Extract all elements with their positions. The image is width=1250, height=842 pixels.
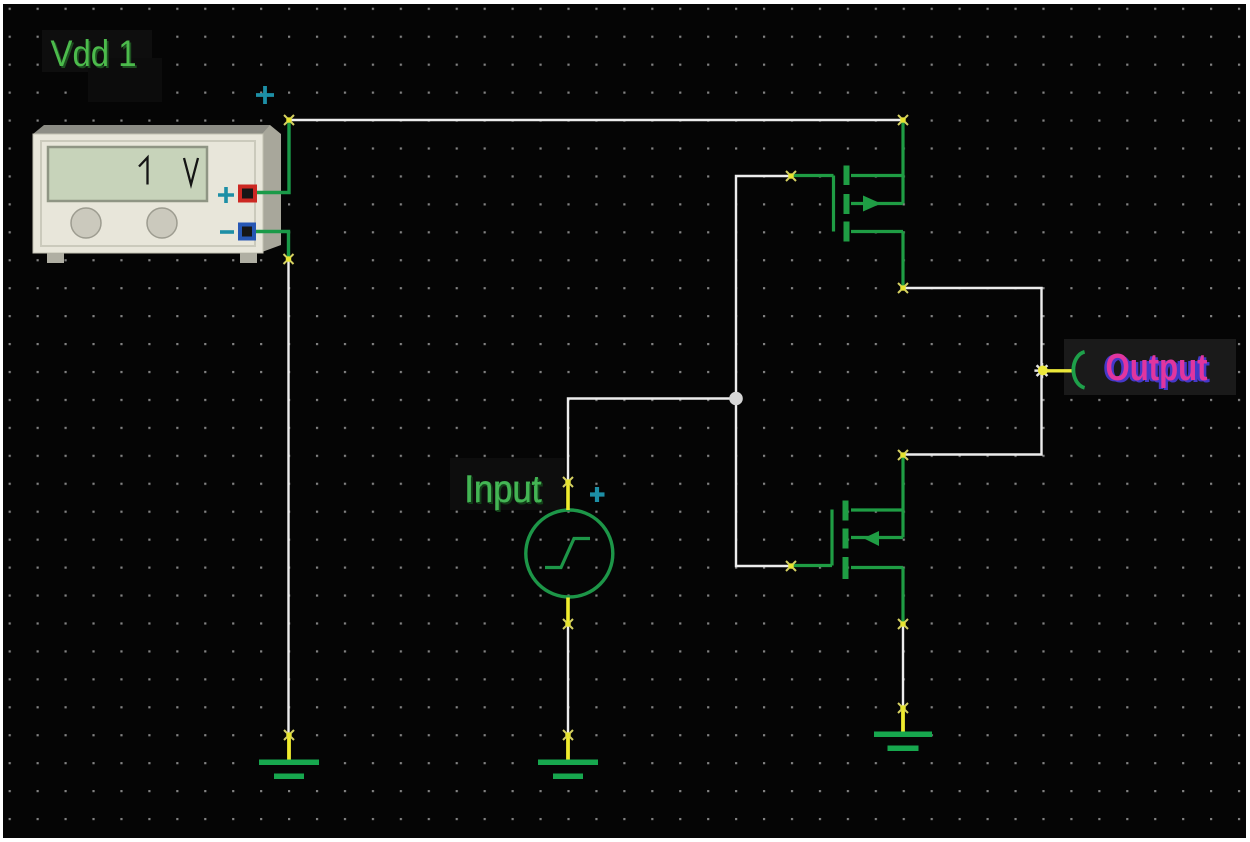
svg-text:Vdd 1: Vdd 1 — [51, 33, 137, 74]
svg-text:Output: Output — [1106, 347, 1208, 389]
svg-text:Input: Input — [465, 469, 542, 511]
